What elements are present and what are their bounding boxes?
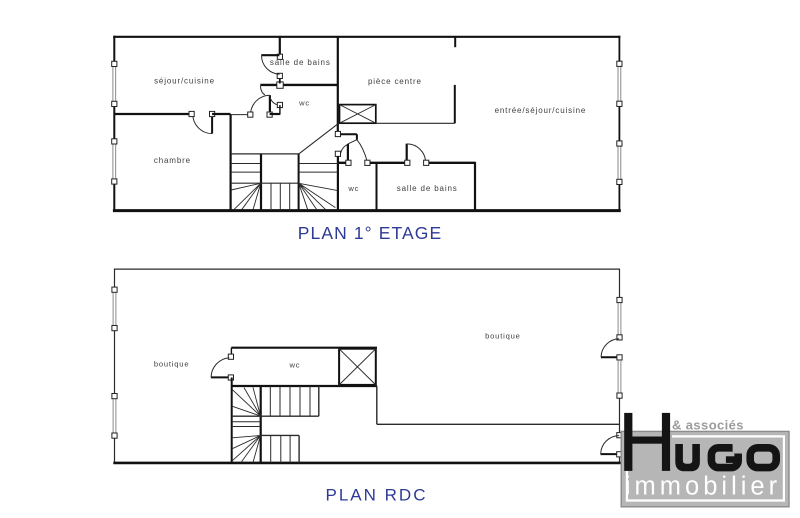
svg-text:wc: wc bbox=[347, 184, 359, 193]
svg-text:salle de bains: salle de bains bbox=[270, 58, 331, 67]
svg-text:entrée/séjour/cuisine: entrée/séjour/cuisine bbox=[495, 106, 587, 115]
svg-text:immobilier: immobilier bbox=[625, 473, 781, 501]
svg-text:pièce centre: pièce centre bbox=[368, 77, 422, 86]
svg-text:salle de bains: salle de bains bbox=[397, 184, 458, 193]
svg-text:boutique: boutique bbox=[154, 359, 190, 368]
svg-text:& associés: & associés bbox=[672, 417, 744, 432]
svg-text:PLAN 1° ETAGE: PLAN 1° ETAGE bbox=[298, 223, 443, 243]
svg-text:wc: wc bbox=[288, 361, 300, 370]
svg-text:chambre: chambre bbox=[154, 156, 191, 165]
svg-text:PLAN RDC: PLAN RDC bbox=[326, 485, 428, 504]
svg-text:wc: wc bbox=[298, 99, 310, 108]
svg-text:séjour/cuisine: séjour/cuisine bbox=[154, 77, 215, 86]
svg-text:boutique: boutique bbox=[485, 331, 521, 340]
